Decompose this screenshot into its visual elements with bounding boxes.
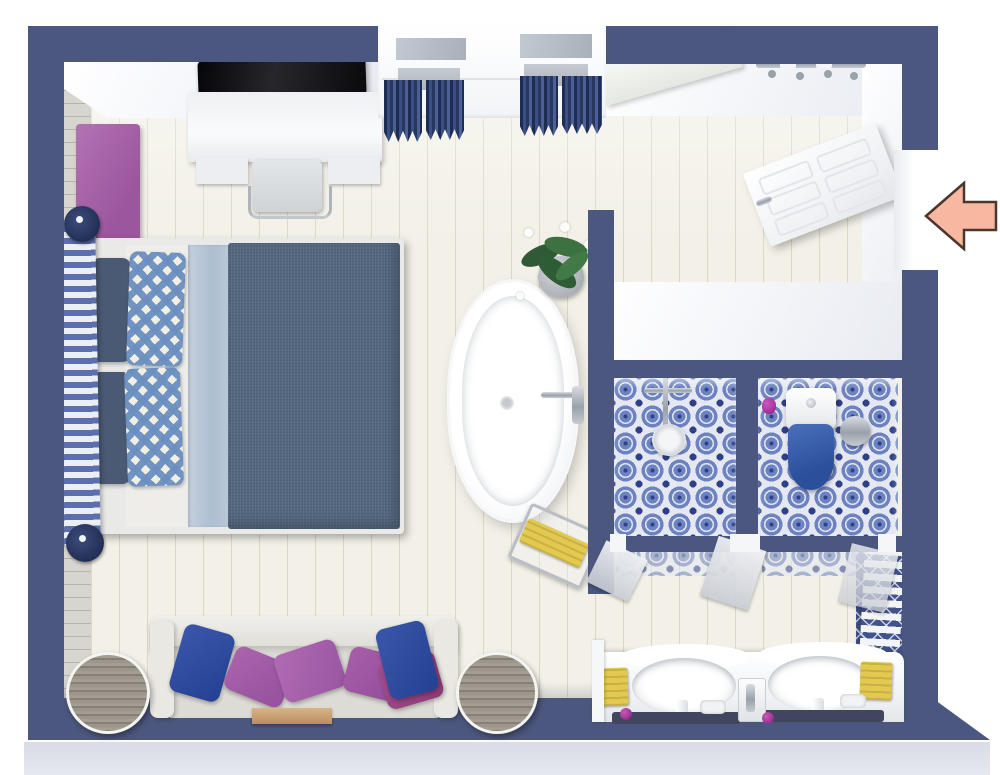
shower-bar xyxy=(644,388,692,393)
window-pane-left xyxy=(396,38,466,60)
headboard-finial-bottom xyxy=(66,524,104,562)
side-table-left xyxy=(66,652,150,734)
finial-glint-bottom xyxy=(79,535,86,542)
toilet-bowl-lid xyxy=(788,424,834,490)
outer-wall-right-lower xyxy=(902,268,938,740)
sofa xyxy=(150,616,458,720)
bed-duvet xyxy=(228,243,400,529)
stall-door-post-3 xyxy=(878,534,896,552)
headboard-finial-top xyxy=(64,206,100,242)
tub-faucet-body xyxy=(572,386,584,424)
stall-divider-wall xyxy=(736,360,758,552)
vanity-bottle xyxy=(746,684,755,712)
shower-stall-floor xyxy=(612,376,738,542)
pillow-check-top xyxy=(126,251,186,367)
desk-drawer-right xyxy=(328,158,380,184)
outer-wall-right-upper xyxy=(902,26,938,154)
wooden-tray xyxy=(252,708,332,724)
wc-soap-magenta xyxy=(762,398,776,414)
towel-hook-4 xyxy=(850,72,858,80)
vanity-end-panel xyxy=(592,640,604,722)
outer-wall-top-left xyxy=(28,26,378,62)
pillow-check-bottom xyxy=(124,367,184,487)
floor-plan-canvas xyxy=(0,0,1000,775)
plant-flower-1 xyxy=(524,228,533,237)
vanity-drawer-right xyxy=(756,710,884,722)
bed-sheet-fold xyxy=(188,245,228,527)
shower-drain xyxy=(652,424,686,456)
towel-hook-2 xyxy=(796,72,804,80)
plant-flower-2 xyxy=(560,222,570,232)
side-table-right xyxy=(456,652,538,734)
waste-bin xyxy=(840,416,870,446)
soap-dish-left xyxy=(700,700,726,714)
desk xyxy=(188,92,382,162)
outside-shadow-band xyxy=(24,742,990,775)
desk-chair-legs xyxy=(248,186,332,219)
towel-hook-3 xyxy=(824,70,832,78)
towel-hook-1 xyxy=(768,70,776,78)
stall-door-post-2 xyxy=(730,534,760,552)
finial-glint-top xyxy=(76,216,83,223)
entry-arrow-icon xyxy=(920,180,998,252)
outer-wall-left xyxy=(28,26,64,740)
stall-north-wall-face xyxy=(604,282,904,362)
sofa-arm-left xyxy=(150,620,174,718)
bathtub-drain xyxy=(500,396,514,410)
soap-ball-middle xyxy=(762,712,774,724)
soap-dish-right xyxy=(840,694,866,708)
stall-door-post-1 xyxy=(610,534,626,552)
desk-drawer-left xyxy=(196,158,248,184)
soap-ball-left xyxy=(620,708,632,720)
window-pane-right xyxy=(520,34,592,58)
outer-wall-top-right xyxy=(606,26,908,64)
plant-flower-4 xyxy=(516,292,524,300)
toilet-flush-button xyxy=(806,398,816,408)
bed xyxy=(86,238,404,534)
